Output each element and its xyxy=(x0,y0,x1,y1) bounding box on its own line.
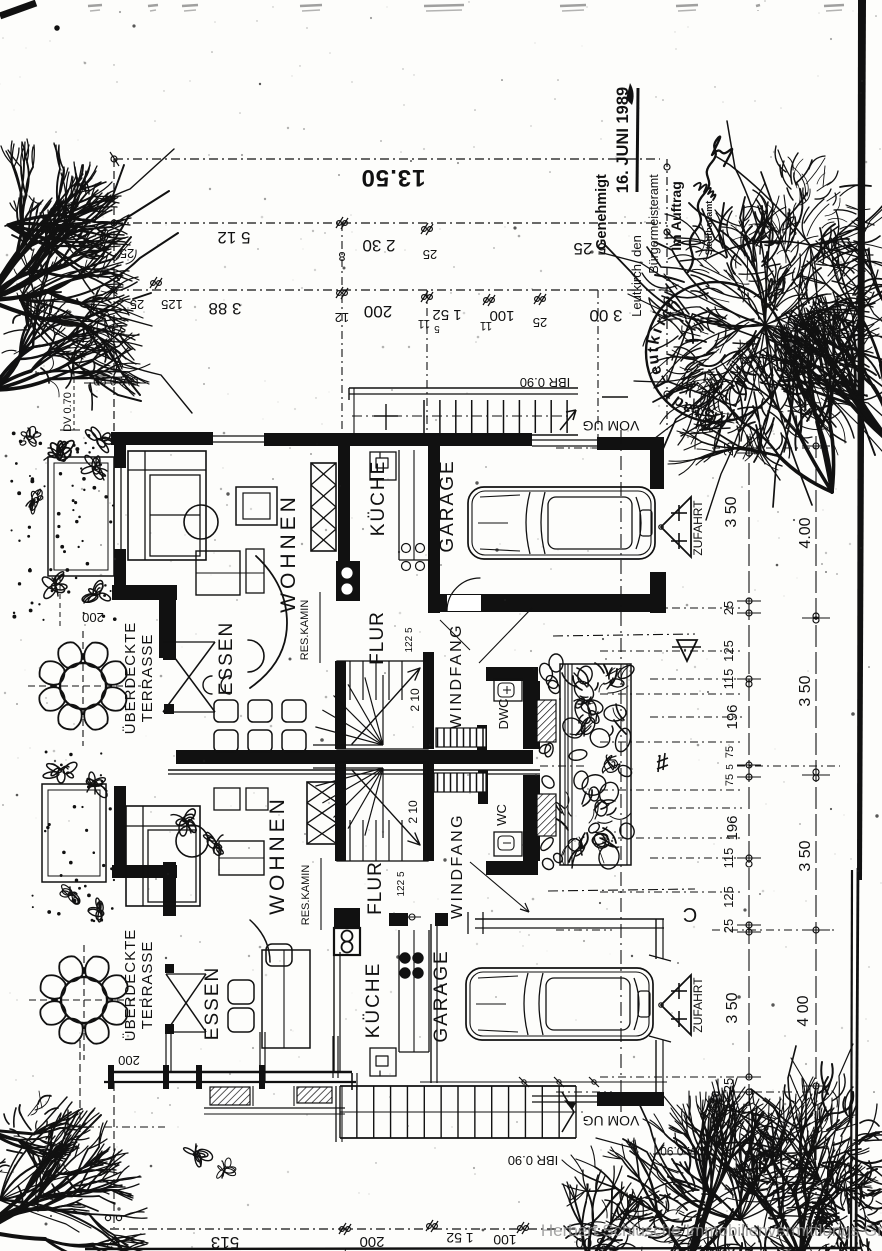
svg-text:VOM UG: VOM UG xyxy=(583,418,640,434)
svg-text:FLUR: FLUR xyxy=(365,861,386,915)
svg-text:75: 75 xyxy=(724,746,736,758)
svg-text:KÜCHE: KÜCHE xyxy=(368,460,389,537)
svg-text:4 00: 4 00 xyxy=(795,995,812,1026)
svg-text:WINDFANG: WINDFANG xyxy=(449,813,466,919)
svg-text:ÜBERDECKTE: ÜBERDECKTE xyxy=(121,929,139,1042)
svg-text:2 30: 2 30 xyxy=(362,236,395,255)
svg-text:5: 5 xyxy=(434,323,440,334)
svg-text:13.50: 13.50 xyxy=(360,164,425,191)
svg-text:7: 7 xyxy=(341,1245,348,1251)
svg-text:KÜCHE: KÜCHE xyxy=(363,962,384,1039)
svg-text:122 5: 122 5 xyxy=(396,871,407,896)
svg-text:5 12: 5 12 xyxy=(217,228,250,247)
svg-text:3 00: 3 00 xyxy=(589,306,622,325)
svg-text:Stadtbauamt: Stadtbauamt xyxy=(704,201,714,256)
svg-text:1 52: 1 52 xyxy=(432,306,461,323)
svg-text:513: 513 xyxy=(211,1233,239,1251)
svg-text:ZUFAHRT: ZUFAHRT xyxy=(691,500,705,556)
svg-text:IBR 0.90: IBR 0.90 xyxy=(508,1153,559,1168)
svg-text:200: 200 xyxy=(359,1233,384,1250)
svg-text:ESSEN: ESSEN xyxy=(216,621,237,695)
svg-text:ESSEN: ESSEN xyxy=(202,966,223,1040)
svg-text:DWC: DWC xyxy=(496,698,511,729)
svg-text:200: 200 xyxy=(118,1053,140,1068)
svg-text:200: 200 xyxy=(82,610,104,625)
svg-text:ZUFAHRT: ZUFAHRT xyxy=(691,977,705,1033)
svg-text:25: 25 xyxy=(721,1078,736,1092)
svg-text:25: 25 xyxy=(721,919,736,933)
svg-text:25: 25 xyxy=(721,601,736,615)
svg-text:ÜBERDECKTE: ÜBERDECKTE xyxy=(121,622,139,735)
svg-text:FLUR: FLUR xyxy=(367,611,388,665)
svg-text:WINDFANG: WINDFANG xyxy=(448,623,465,729)
svg-text:115: 115 xyxy=(721,848,736,869)
svg-text:IBR 0.90: IBR 0.90 xyxy=(520,375,571,390)
svg-text:RES.KAMIN: RES.KAMIN xyxy=(299,600,311,661)
svg-text:TERRASSE: TERRASSE xyxy=(139,941,156,1030)
svg-text:100: 100 xyxy=(489,307,514,324)
svg-text:VOM UG: VOM UG xyxy=(583,1113,640,1129)
svg-text:WC: WC xyxy=(494,804,509,826)
svg-text:WOHNEN: WOHNEN xyxy=(266,795,289,915)
svg-text:196: 196 xyxy=(724,704,741,729)
svg-text:u: u xyxy=(645,354,663,366)
svg-text:1 52: 1 52 xyxy=(446,1230,473,1246)
svg-text:Bürgermeisteramt: Bürgermeisteramt xyxy=(647,174,661,274)
svg-text:DV. 0.90: DV. 0.90 xyxy=(93,374,139,388)
svg-text:TERRASSE: TERRASSE xyxy=(139,634,156,723)
svg-text:C: C xyxy=(683,903,697,925)
svg-text:3 50: 3 50 xyxy=(797,675,814,706)
svg-text:5: 5 xyxy=(725,764,736,770)
svg-text:11: 11 xyxy=(479,319,492,333)
svg-text:25: 25 xyxy=(533,315,547,330)
svg-text:3 88: 3 88 xyxy=(208,299,241,318)
svg-text:Leutkirch, den: Leutkirch, den xyxy=(629,235,644,317)
svg-text:Herbert Schlusche Immobilienve: Herbert Schlusche Immobilienvermittlungs… xyxy=(541,1221,882,1240)
svg-text:DV 0.70: DV 0.70 xyxy=(62,392,74,432)
svg-text:2 10: 2 10 xyxy=(406,800,420,824)
svg-text:25: 25 xyxy=(120,246,134,261)
svg-text:115: 115 xyxy=(721,669,736,690)
svg-text:75: 75 xyxy=(724,774,736,786)
svg-text:4.00: 4.00 xyxy=(797,517,814,548)
svg-text:3 50: 3 50 xyxy=(797,840,814,871)
svg-text:DV. 0.90: DV. 0.90 xyxy=(660,1144,706,1158)
svg-text:S: S xyxy=(703,405,716,423)
svg-text:25: 25 xyxy=(130,297,144,312)
svg-text:3 50: 3 50 xyxy=(723,496,740,527)
svg-text:125: 125 xyxy=(721,640,736,662)
svg-text:11: 11 xyxy=(417,317,430,331)
svg-text:DV 0.70: DV 0.70 xyxy=(710,1091,722,1131)
svg-text:196: 196 xyxy=(724,815,741,840)
svg-text:2 10: 2 10 xyxy=(408,688,422,712)
svg-text:200: 200 xyxy=(364,302,392,321)
svg-text:122 5: 122 5 xyxy=(404,627,415,652)
svg-text:GARAGE: GARAGE xyxy=(431,949,452,1042)
svg-text:125: 125 xyxy=(161,297,183,312)
svg-text:WOHNEN: WOHNEN xyxy=(277,493,300,613)
svg-text:25: 25 xyxy=(423,247,437,262)
svg-text:25: 25 xyxy=(721,442,736,456)
svg-text:RES.KAMIN: RES.KAMIN xyxy=(300,865,312,926)
svg-text:Genehmigt: Genehmigt xyxy=(594,174,610,250)
svg-text:GARAGE: GARAGE xyxy=(437,459,458,552)
svg-text:52: 52 xyxy=(106,1237,120,1251)
svg-text:Im Auftrag: Im Auftrag xyxy=(668,181,684,250)
svg-text:100: 100 xyxy=(493,1232,517,1248)
svg-text:16. JUNI 1989: 16. JUNI 1989 xyxy=(614,87,632,193)
svg-text:125: 125 xyxy=(721,886,736,908)
